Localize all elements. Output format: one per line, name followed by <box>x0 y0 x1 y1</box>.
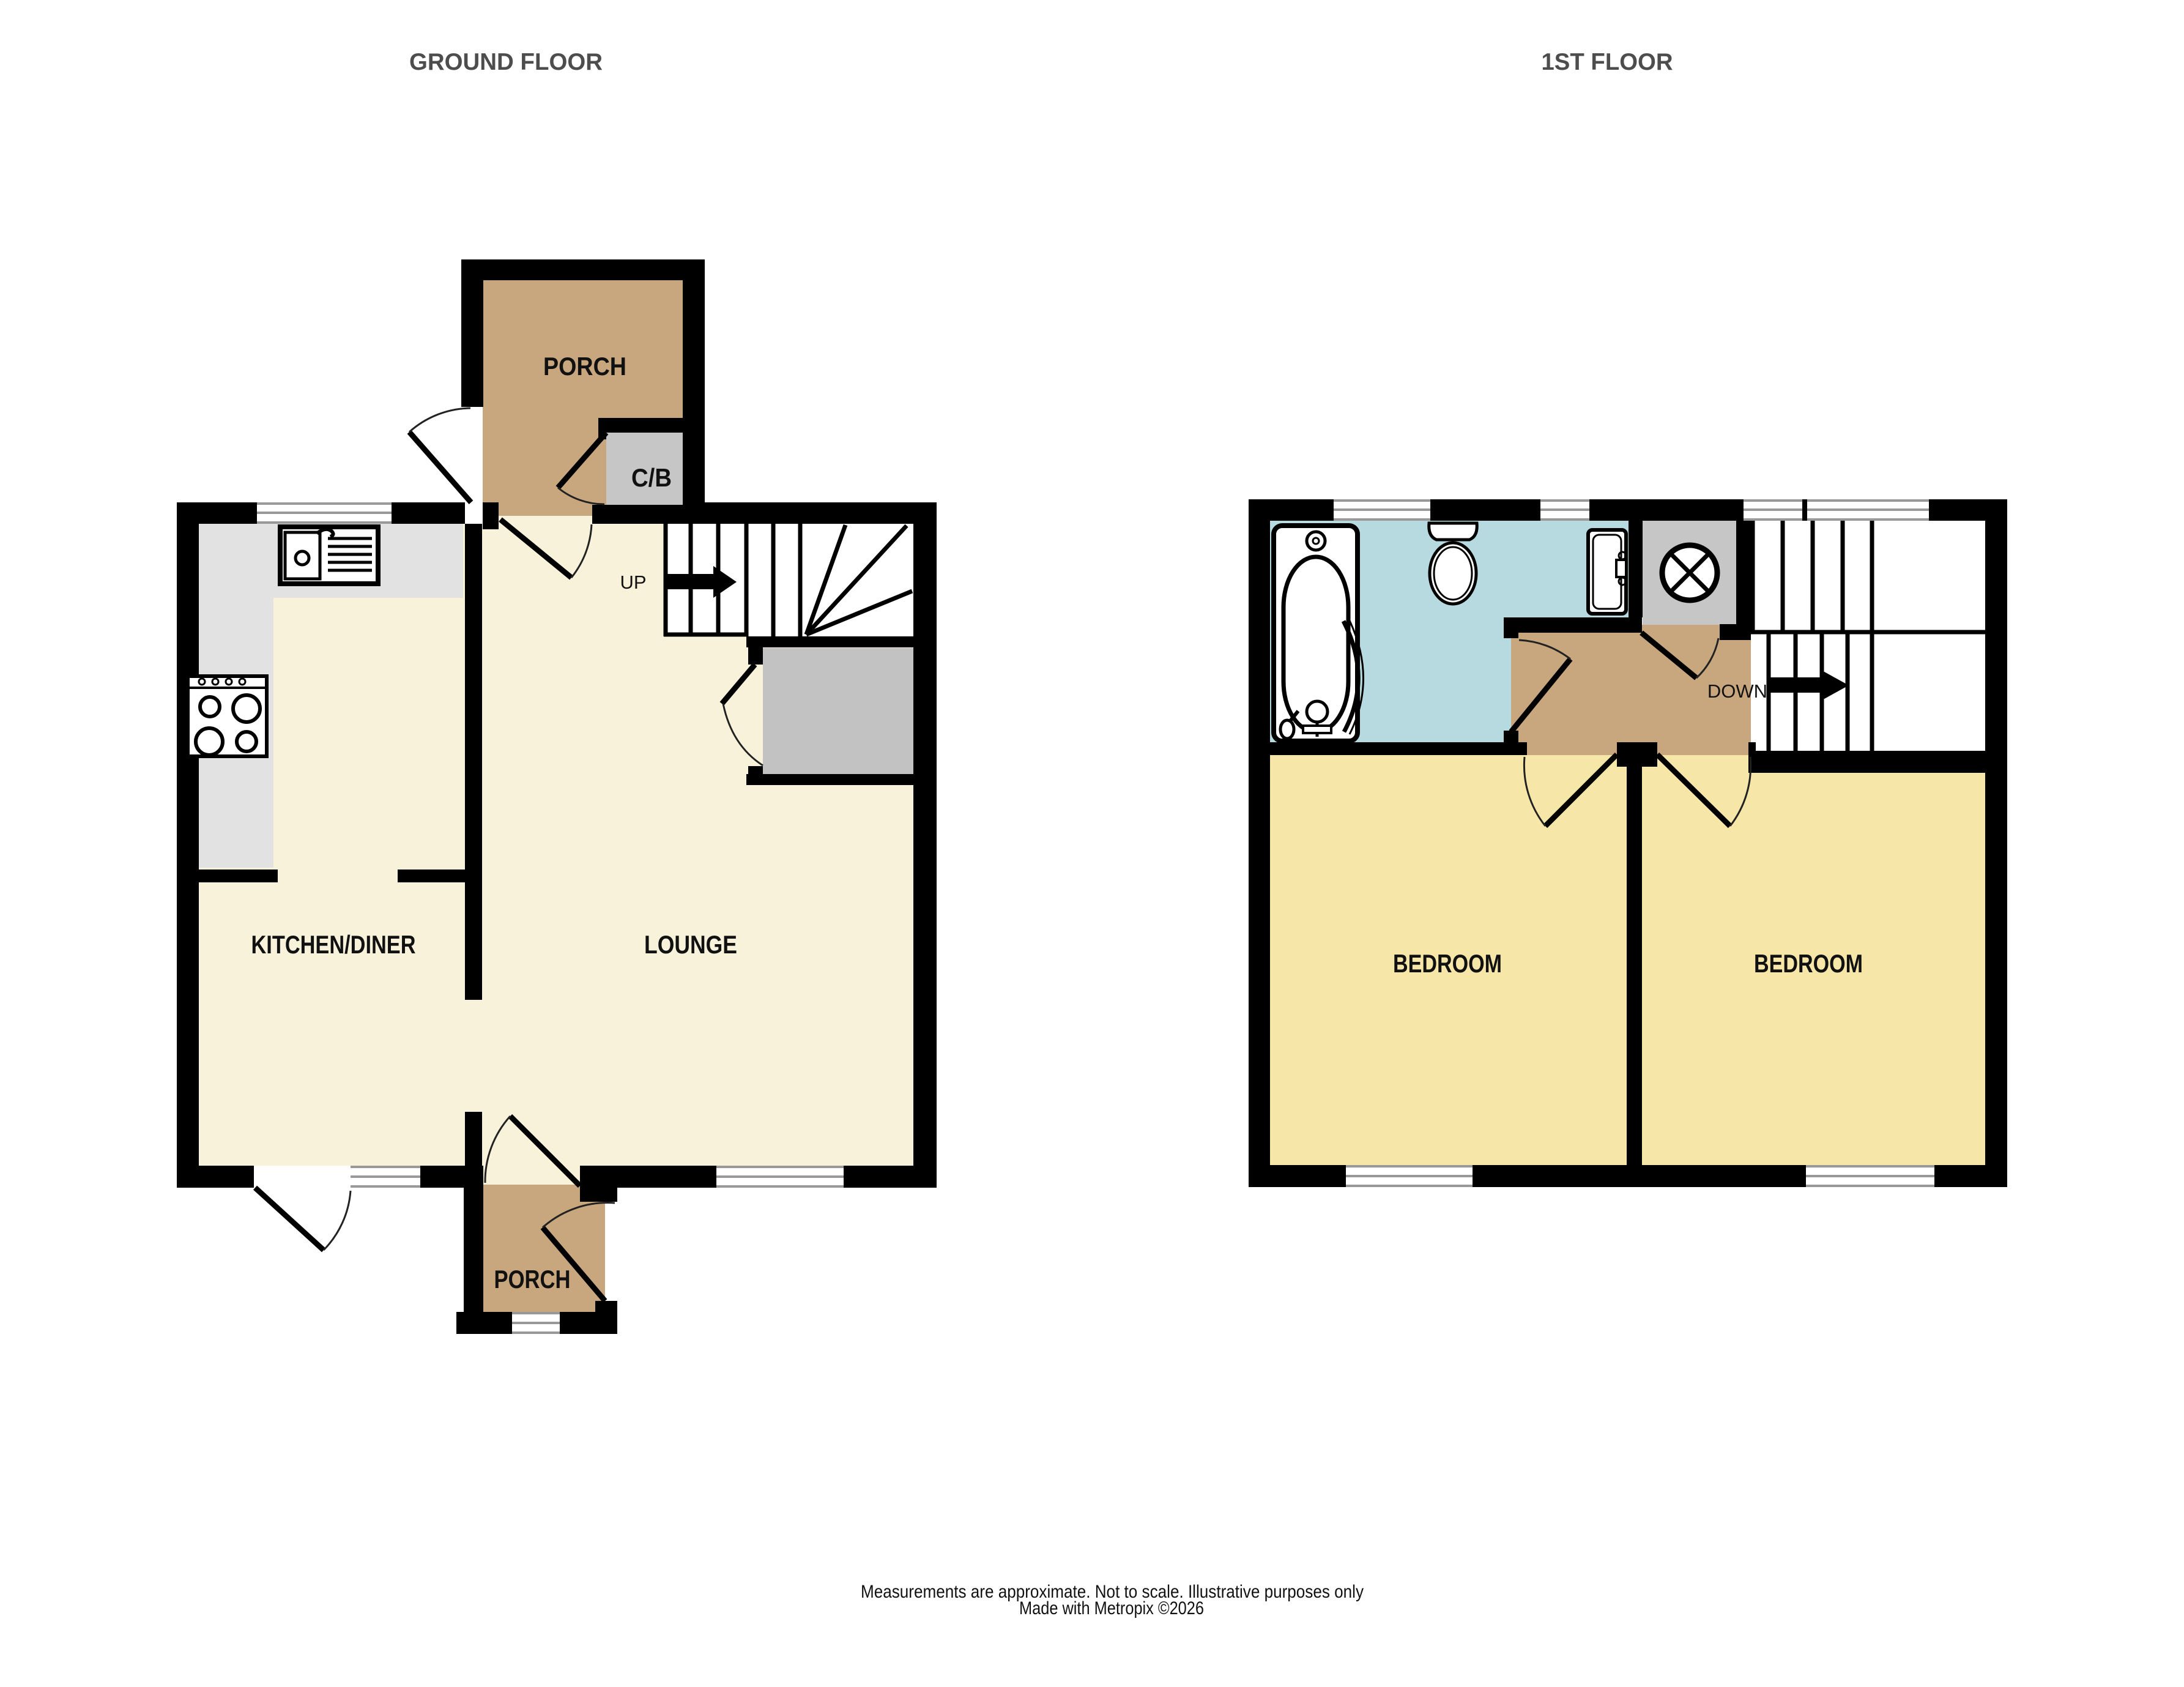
svg-text:Made with Metropix ©2026: Made with Metropix ©2026 <box>1019 1598 1204 1618</box>
svg-text:C/B: C/B <box>631 463 672 492</box>
svg-text:BEDROOM: BEDROOM <box>1754 949 1863 978</box>
svg-text:UP: UP <box>620 572 646 593</box>
svg-text:BEDROOM: BEDROOM <box>1393 949 1502 978</box>
svg-text:PORCH: PORCH <box>543 352 626 381</box>
svg-text:KITCHEN/DINER: KITCHEN/DINER <box>251 930 416 959</box>
svg-text:1ST FLOOR: 1ST FLOOR <box>1542 49 1673 75</box>
svg-text:GROUND FLOOR: GROUND FLOOR <box>409 49 603 75</box>
svg-text:PORCH: PORCH <box>494 1265 571 1294</box>
svg-text:DOWN: DOWN <box>1707 680 1767 702</box>
svg-text:LOUNGE: LOUNGE <box>644 930 737 959</box>
